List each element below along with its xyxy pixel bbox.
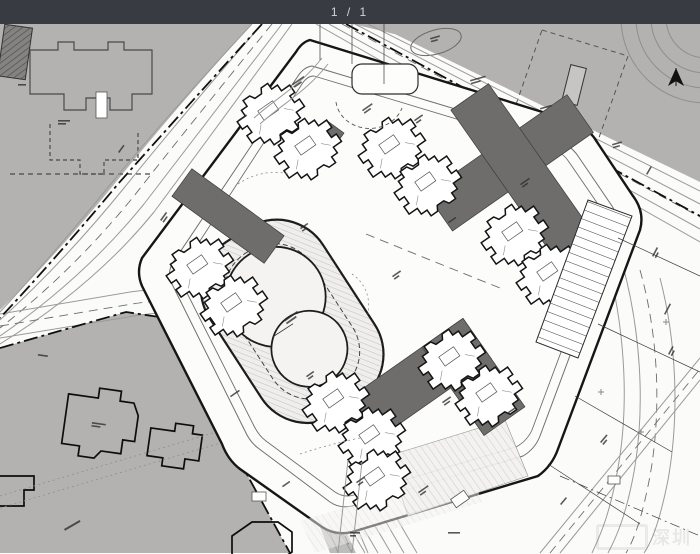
- viewer-window: 1 / 1: [0, 0, 700, 554]
- site-plan-drawing: [0, 24, 700, 554]
- entrance-bay: [352, 64, 418, 94]
- page-indicator: 1 / 1: [331, 5, 369, 19]
- drawing-canvas[interactable]: 深圳: [0, 24, 700, 554]
- pager-bar: 1 / 1: [0, 0, 700, 24]
